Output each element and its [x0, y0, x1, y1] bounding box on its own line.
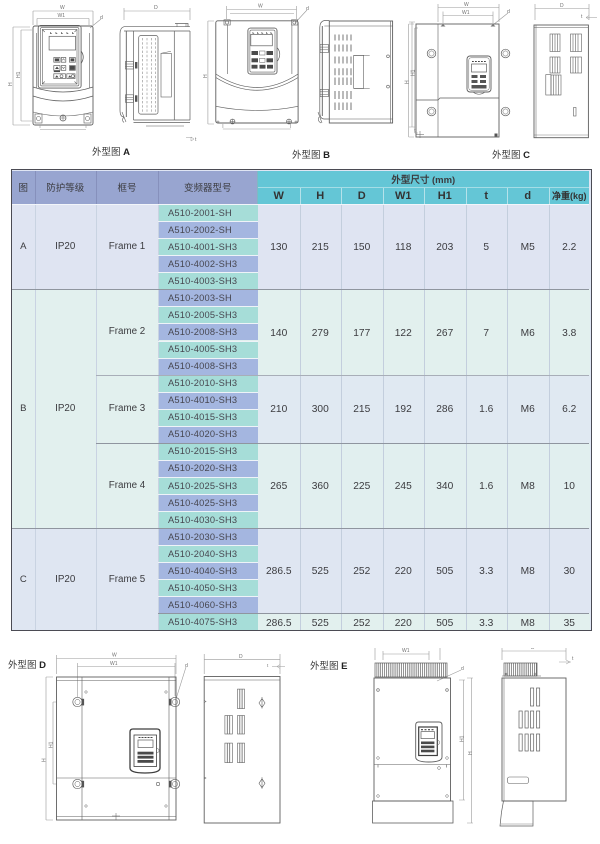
svg-text:d: d — [306, 6, 309, 12]
svg-text:t: t — [195, 137, 197, 143]
svg-text:W: W — [258, 4, 263, 10]
svg-text:W: W — [112, 653, 117, 659]
svg-text:H: H — [42, 758, 48, 762]
svg-text:H: H — [405, 80, 411, 84]
svg-text:d: d — [507, 9, 510, 15]
svg-text:d: d — [100, 15, 103, 21]
svg-text:D: D — [239, 654, 243, 660]
svg-text:H: H — [203, 74, 209, 78]
svg-text:W1: W1 — [58, 13, 66, 19]
svg-text:t: t — [581, 14, 583, 20]
svg-text:t: t — [572, 656, 574, 662]
svg-text:H1: H1 — [16, 71, 22, 78]
svg-text:D: D — [531, 648, 535, 651]
svg-text:H: H — [8, 82, 14, 86]
svg-text:t: t — [267, 663, 269, 668]
svg-text:W1: W1 — [110, 661, 118, 667]
svg-text:W: W — [60, 5, 65, 11]
svg-text:H1: H1 — [460, 735, 466, 742]
svg-text:H1: H1 — [49, 741, 55, 748]
svg-text:D: D — [154, 5, 158, 11]
svg-text:H: H — [468, 751, 474, 755]
svg-text:W1: W1 — [402, 648, 410, 654]
svg-text:D: D — [560, 3, 564, 9]
svg-text:W1: W1 — [462, 10, 470, 16]
svg-text:d: d — [461, 666, 464, 672]
svg-text:d: d — [185, 663, 188, 669]
svg-text:W: W — [464, 2, 469, 8]
